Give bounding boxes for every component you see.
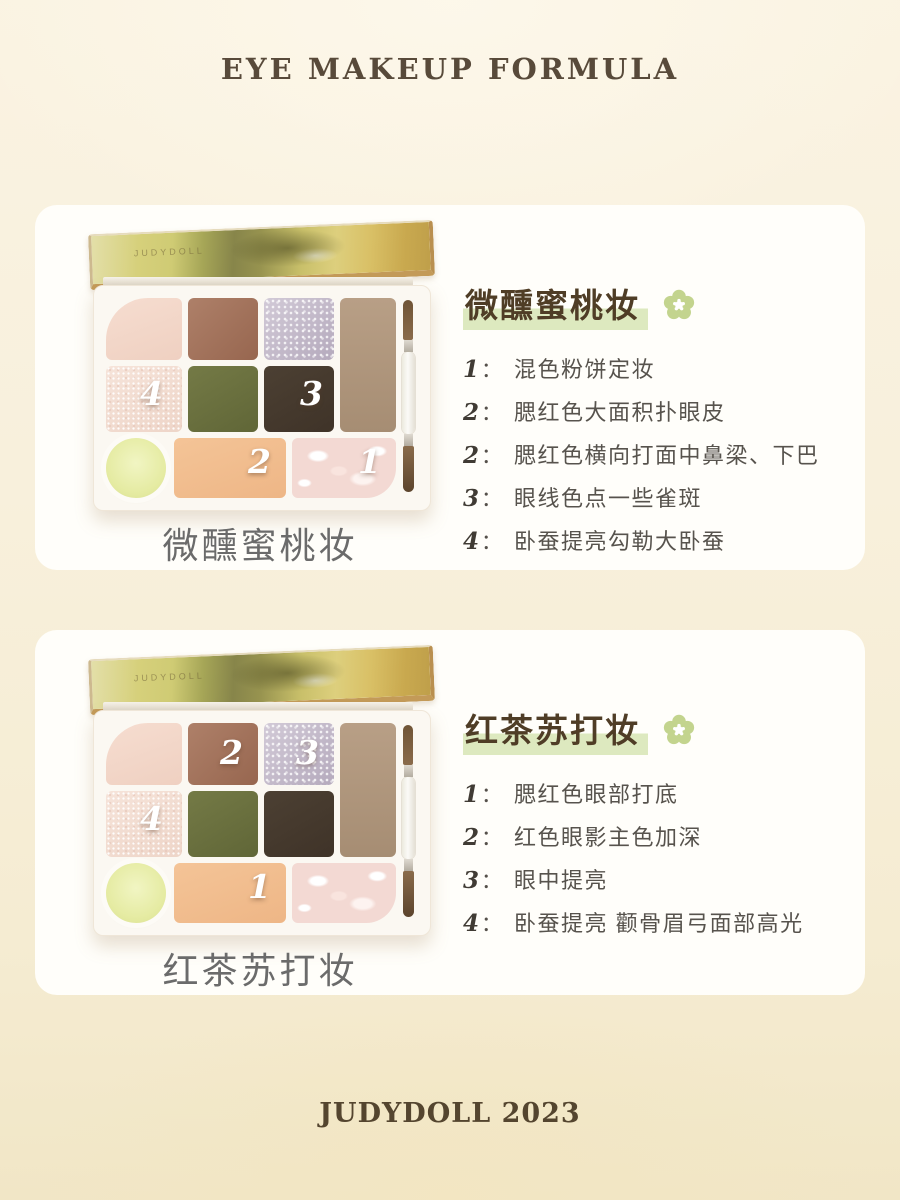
step-number: 1 — [463, 356, 479, 383]
pan-pink-marble — [292, 863, 396, 923]
step-row: 1 ： 混色粉饼定妆 — [463, 352, 853, 384]
step-row: 2 ： 腮红色横向打面中鼻梁、下巴 — [463, 438, 853, 470]
pan-dark-brown — [264, 366, 334, 432]
pan-brown — [188, 298, 258, 360]
step-colon: ： — [481, 865, 502, 895]
flower-icon — [662, 713, 696, 747]
pan-yellow-green-circle — [106, 863, 166, 923]
dual-ended-brush — [400, 300, 416, 496]
step-number: 3 — [463, 485, 479, 512]
step-number: 1 — [463, 781, 479, 808]
step-text: 混色粉饼定妆 — [514, 352, 655, 384]
step-text: 腮红色眼部打底 — [514, 777, 679, 809]
step-text: 眼中提亮 — [514, 863, 608, 895]
pan-number-peach: 2 — [248, 442, 271, 481]
step-colon: ： — [481, 397, 502, 427]
section-content: 红茶苏打妆 — [463, 704, 853, 949]
pan-number-dark: 3 — [300, 374, 323, 413]
pan-number-peach: 1 — [248, 867, 271, 906]
step-number: 3 — [463, 867, 479, 894]
step-colon: ： — [481, 440, 502, 470]
brush-tip-icon — [403, 446, 414, 492]
brush-ferrule — [404, 765, 413, 777]
pan-olive-green — [188, 366, 258, 432]
pan-tall-tan — [340, 298, 396, 432]
step-text: 红色眼影主色加深 — [514, 820, 702, 852]
footer-brand-text: JUDYDOLL 2023 — [0, 1098, 900, 1129]
section-card-peach: JUDYDOLL 4 3 2 1 — [35, 205, 865, 570]
pan-tall-tan — [340, 723, 396, 857]
section-content: 微醺蜜桃妆 — [463, 279, 853, 567]
brush-ferrule — [404, 859, 413, 871]
page-title: EYE MAKEUP FORMULA — [0, 52, 900, 86]
step-text: 眼线色点一些雀斑 — [514, 481, 702, 513]
brush-tip-icon — [403, 871, 414, 917]
pan-olive-green — [188, 791, 258, 857]
palette-photo-peach: JUDYDOLL 4 3 2 1 — [85, 225, 435, 485]
step-number: 4 — [463, 528, 479, 555]
step-number: 4 — [463, 910, 479, 937]
section-title: 微醺蜜桃妆 — [463, 279, 648, 330]
palette-lid-brand: JUDYDOLL — [134, 670, 205, 683]
brush-tip-icon — [403, 300, 413, 340]
brush-ferrule — [404, 340, 413, 352]
step-row: 1 ： 腮红色眼部打底 — [463, 777, 853, 809]
step-colon: ： — [481, 822, 502, 852]
flower-icon — [662, 288, 696, 322]
palette-tray: 2 3 4 1 — [93, 710, 431, 936]
palette-caption: 红茶苏打妆 — [85, 942, 435, 994]
page-background: EYE MAKEUP FORMULA JUDYDOLL 4 3 2 — [0, 0, 900, 1200]
step-colon: ： — [481, 526, 502, 556]
step-row: 4 ： 卧蚕提亮勾勒大卧蚕 — [463, 524, 853, 556]
step-colon: ： — [481, 483, 502, 513]
step-row: 2 ： 腮红色大面积扑眼皮 — [463, 395, 853, 427]
step-row: 2 ： 红色眼影主色加深 — [463, 820, 853, 852]
pan-number-glitter: 3 — [296, 733, 319, 772]
step-row: 3 ： 眼线色点一些雀斑 — [463, 481, 853, 513]
pan-number-marble: 1 — [358, 442, 381, 481]
pan-glitter-lilac — [264, 298, 334, 360]
step-row: 4 ： 卧蚕提亮 颧骨眉弓面部高光 — [463, 906, 853, 938]
dual-ended-brush — [400, 725, 416, 921]
pan-yellow-green-circle — [106, 438, 166, 498]
step-colon: ： — [481, 908, 502, 938]
step-list: 1 ： 混色粉饼定妆 2 ： 腮红色大面积扑眼皮 2 ： 腮红色横向打面中鼻梁、… — [463, 352, 853, 556]
palette-photo-blacktea: JUDYDOLL 2 3 4 1 — [85, 650, 435, 910]
step-text: 腮红色大面积扑眼皮 — [514, 395, 726, 427]
step-list: 1 ： 腮红色眼部打底 2 ： 红色眼影主色加深 3 ： 眼中提亮 4 ： — [463, 777, 853, 938]
step-row: 3 ： 眼中提亮 — [463, 863, 853, 895]
pan-dark-brown — [264, 791, 334, 857]
palette-caption: 微醺蜜桃妆 — [85, 517, 435, 569]
step-text: 卧蚕提亮勾勒大卧蚕 — [514, 524, 726, 556]
step-number: 2 — [463, 442, 479, 469]
section-head: 微醺蜜桃妆 — [463, 279, 853, 330]
palette-tray: 4 3 2 1 — [93, 285, 431, 511]
section-card-blacktea: JUDYDOLL 2 3 4 1 — [35, 630, 865, 995]
pan-number-shimmer: 4 — [140, 799, 163, 838]
step-number: 2 — [463, 824, 479, 851]
brush-handle — [402, 352, 415, 434]
pan-number-brown: 2 — [220, 733, 243, 772]
pan-pale-pink — [106, 298, 182, 360]
section-title: 红茶苏打妆 — [463, 704, 648, 755]
section-head: 红茶苏打妆 — [463, 704, 853, 755]
step-text: 卧蚕提亮 颧骨眉弓面部高光 — [514, 906, 804, 938]
brush-handle — [402, 777, 415, 859]
step-number: 2 — [463, 399, 479, 426]
step-text: 腮红色横向打面中鼻梁、下巴 — [514, 438, 820, 470]
step-colon: ： — [481, 779, 502, 809]
step-colon: ： — [481, 354, 502, 384]
pan-number-shimmer: 4 — [140, 374, 163, 413]
pan-pale-pink — [106, 723, 182, 785]
brush-tip-icon — [403, 725, 413, 765]
brush-ferrule — [404, 434, 413, 446]
palette-lid-brand: JUDYDOLL — [134, 245, 205, 258]
